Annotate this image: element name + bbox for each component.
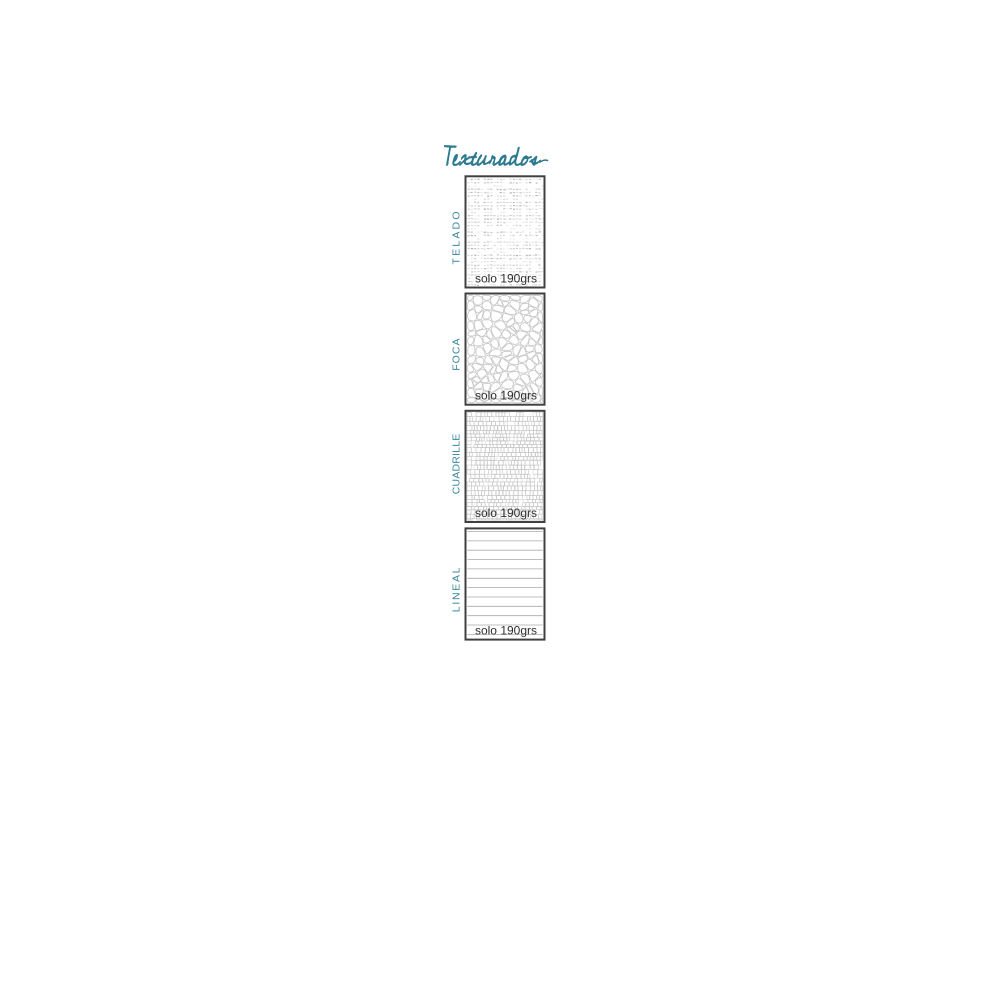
svg-text:FOCA: FOCA bbox=[451, 337, 463, 370]
svg-text:solo 190grs: solo 190grs bbox=[475, 623, 537, 637]
svg-text:LINEAL: LINEAL bbox=[451, 566, 463, 612]
svg-text:solo 190grs: solo 190grs bbox=[475, 271, 537, 285]
svg-text:TELADO: TELADO bbox=[451, 209, 463, 264]
svg-text:solo 190grs: solo 190grs bbox=[475, 389, 537, 403]
svg-text:solo 190grs: solo 190grs bbox=[475, 506, 537, 520]
svg-text:CUADRILLE: CUADRILLE bbox=[451, 434, 463, 495]
